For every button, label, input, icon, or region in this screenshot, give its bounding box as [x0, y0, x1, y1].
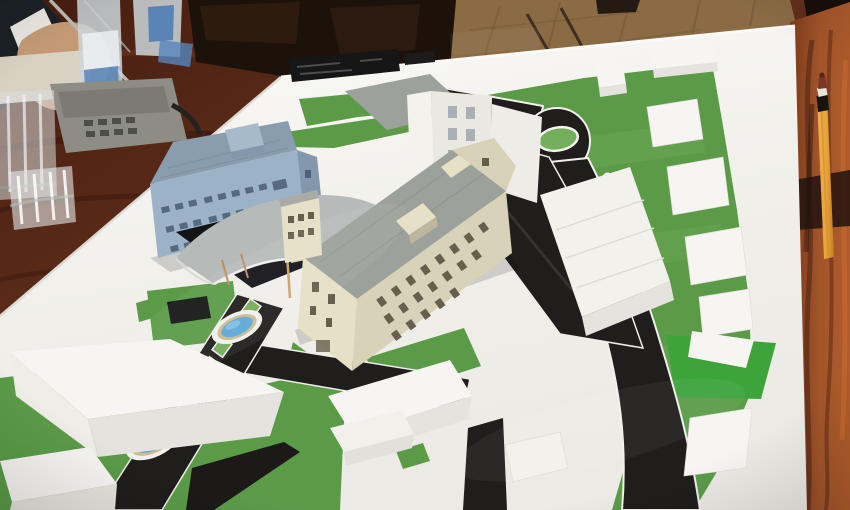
vignette	[0, 0, 850, 510]
scene	[0, 0, 850, 510]
photo-effects	[0, 0, 850, 510]
photograph-architectural-model	[0, 0, 850, 510]
